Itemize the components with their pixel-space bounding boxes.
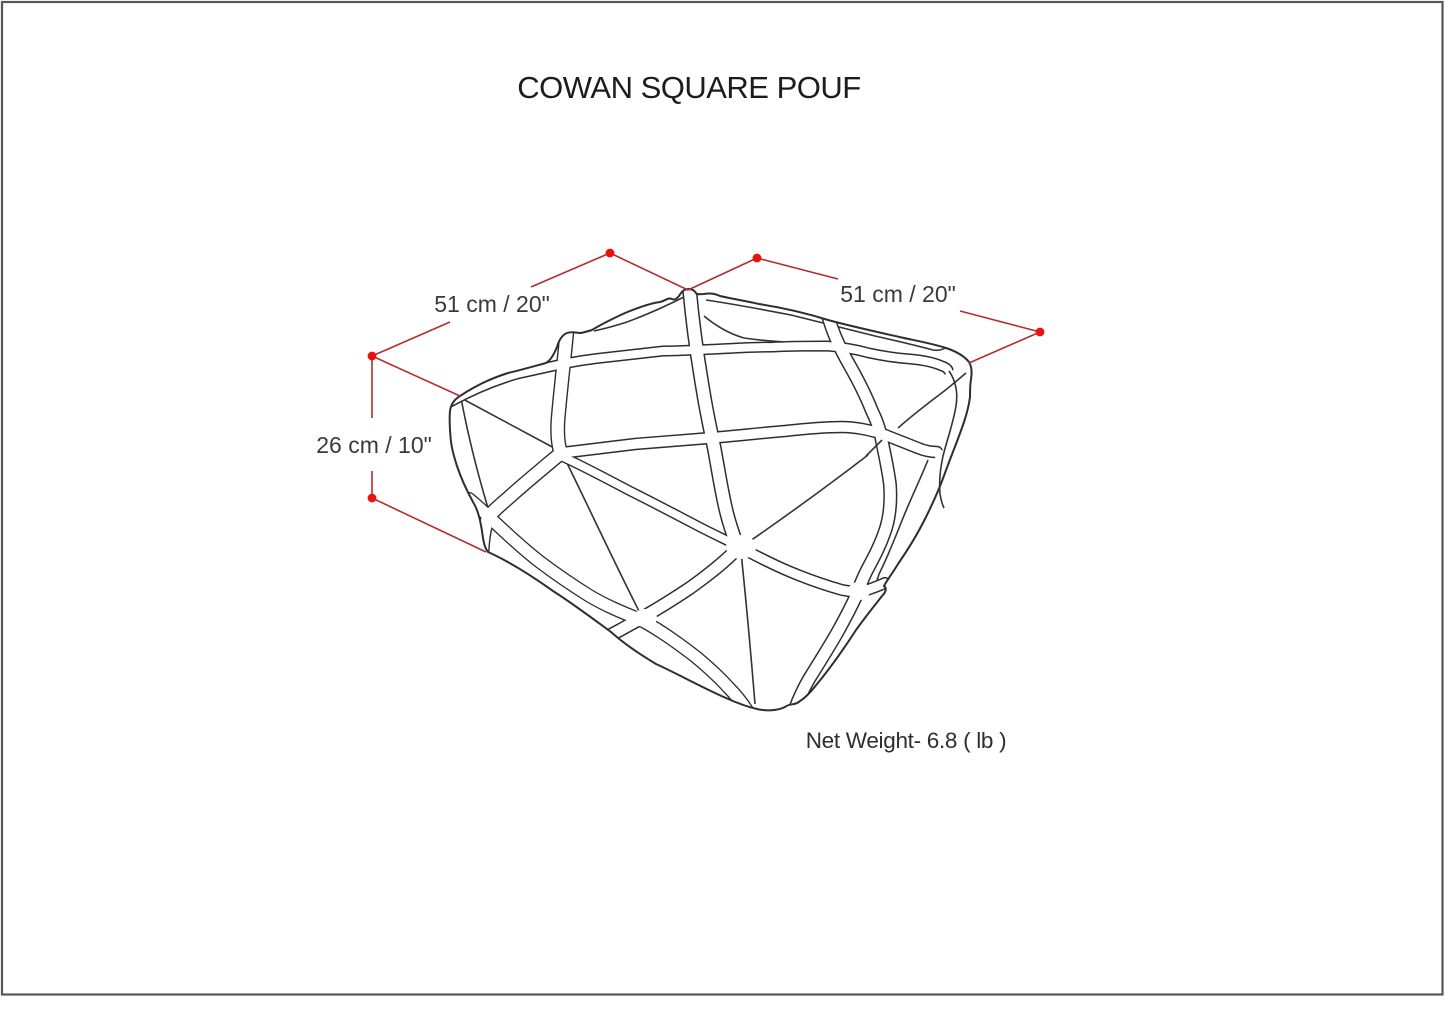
svg-text:51 cm / 20": 51 cm / 20" — [840, 281, 956, 307]
svg-text:COWAN SQUARE POUF: COWAN SQUARE POUF — [517, 70, 860, 105]
svg-text:Net Weight- 6.8 ( lb ): Net Weight- 6.8 ( lb ) — [806, 728, 1007, 753]
svg-text:26 cm / 10": 26 cm / 10" — [316, 432, 432, 458]
svg-text:51 cm / 20": 51 cm / 20" — [434, 291, 550, 317]
